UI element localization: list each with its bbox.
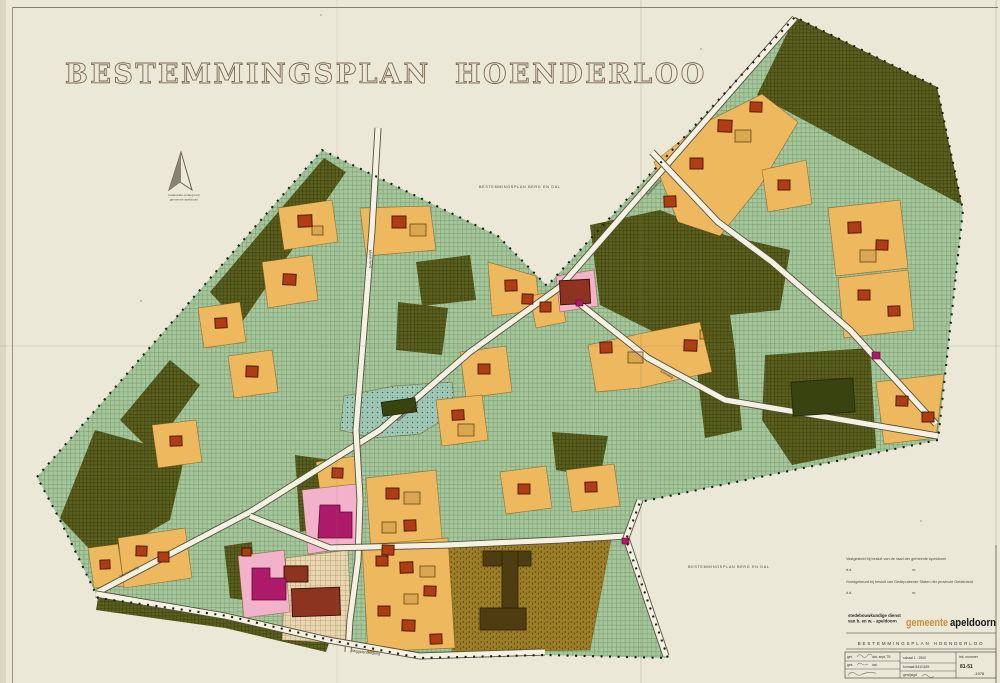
large-building: [284, 566, 308, 582]
stamp-teknr-label: tek. nummer: [959, 655, 979, 659]
stamp-get-label: get.: [847, 655, 853, 659]
map-title-right: HOENDERLOO: [455, 59, 707, 90]
building: [100, 560, 110, 569]
building: [382, 545, 394, 555]
building: [242, 548, 251, 556]
stamp-revised: gewijzigd: [903, 673, 917, 677]
building: [424, 586, 436, 596]
north-arrow-caption-2: gemeente apeldoorn: [170, 198, 199, 202]
building: [452, 410, 465, 421]
building: [778, 180, 790, 190]
approval-line2-nr: nr.: [912, 568, 916, 572]
building: [876, 240, 888, 250]
forest-area: [416, 255, 476, 306]
building: [540, 302, 551, 312]
stamp-municipality-bold: apeldoorn: [950, 617, 996, 629]
dark-building: [791, 378, 855, 416]
map-title-left: BESTEMMINGSPLAN: [65, 59, 431, 90]
stamp-year: -1976: [974, 671, 985, 676]
approval-line3: Goedgekeurd bij besluit van Gedeputeerde…: [846, 580, 973, 584]
forest-area: [396, 302, 448, 355]
building: [136, 546, 147, 556]
building: [430, 634, 442, 644]
building: [505, 280, 517, 291]
building: [386, 488, 399, 499]
zoning-map: KrimwegMiddenwegApeldoornsewegDelenseweg…: [0, 0, 1000, 683]
stamp-dept-line2: van b. en w. - apeldoorn: [848, 619, 897, 624]
signature-scribble: [922, 675, 934, 678]
residential-parcel: [436, 395, 488, 446]
adjacent-plan-label-top: BESTEMMINGSPLAN BERG EN DAL: [479, 185, 561, 189]
magenta-marker: [622, 538, 629, 544]
stamp-block: stedebouwkundige dienst van b. en w. - a…: [845, 613, 996, 678]
building-envelope: [458, 424, 474, 436]
approval-line4-dd: d.d.: [846, 591, 852, 595]
building: [392, 216, 406, 228]
residential-parcel: [828, 200, 908, 276]
building: [378, 606, 390, 616]
building: [400, 562, 413, 573]
approval-line4-nr: nr.: [912, 591, 916, 595]
paper-speck: [700, 48, 702, 50]
building: [404, 520, 416, 531]
building: [283, 274, 297, 286]
building-envelope: [312, 226, 323, 235]
signature-scribble: [848, 672, 876, 675]
building-envelope: [404, 492, 420, 504]
building: [246, 366, 258, 377]
building-envelope: [860, 250, 876, 262]
magenta-marker: [872, 352, 880, 359]
building: [896, 396, 908, 406]
north-arrow-caption-1: kadastrale ondergrond: [169, 193, 200, 197]
scanned-map-sheet: { "page": { "title1": "BESTEMMINGSPLAN",…: [0, 0, 1000, 683]
building-envelope: [382, 522, 396, 533]
building-envelope: [735, 130, 751, 142]
approval-line1: Vastgesteld bij besluit van de raad der …: [846, 557, 946, 561]
building: [922, 412, 934, 422]
adjacent-plan-label-bottom: BESTEMMINGSPLAN BERG EN DAL: [688, 565, 770, 569]
building: [158, 552, 169, 562]
building: [170, 436, 182, 446]
building: [518, 484, 530, 494]
building: [888, 306, 900, 316]
stamp-gez-date: dat.: [872, 663, 878, 667]
building: [402, 620, 415, 631]
building: [750, 102, 762, 112]
large-building: [559, 279, 590, 305]
stamp-municipality-light: gemeente: [906, 617, 948, 629]
approval-block: Vastgesteld bij besluit van de raad der …: [846, 557, 973, 595]
stamp-dept-line1: stedebouwkundige dienst: [848, 613, 901, 618]
building: [848, 222, 861, 233]
building: [690, 158, 703, 169]
stamp-get-date: dat. sept.'76: [872, 655, 890, 659]
building: [522, 294, 533, 304]
building-envelope: [700, 330, 712, 339]
paper-speck: [920, 520, 922, 522]
magenta-marker: [576, 300, 583, 306]
paper-speck: [140, 300, 142, 302]
building: [718, 120, 732, 132]
large-building: [292, 587, 341, 617]
road-label: Middenweg: [368, 250, 373, 269]
stamp-teknr: 81-51: [960, 664, 973, 670]
building-envelope: [410, 224, 426, 236]
signature-scribble: [857, 654, 872, 657]
stamp-scale: schaal 1 : 2500: [903, 656, 926, 660]
stamp-format: formaat 841/1189: [903, 665, 929, 669]
building: [600, 342, 612, 353]
paper-speck: [320, 14, 322, 16]
approval-line2-dd: d.d.: [846, 568, 852, 572]
building: [858, 290, 870, 300]
stamp-gez-label: gez.: [847, 663, 853, 667]
building: [478, 364, 490, 374]
building: [298, 215, 312, 227]
north-arrow: kadastrale ondergrond gemeente apeldoorn: [169, 152, 200, 202]
building-envelope: [420, 566, 435, 577]
building: [585, 482, 597, 492]
building: [664, 196, 676, 207]
institution-building: [480, 608, 526, 630]
building: [215, 318, 228, 329]
building: [376, 556, 388, 566]
sheet-edge-left: [0, 0, 6, 683]
building-envelope: [404, 594, 418, 604]
stamp-plan-title: BESTEMMINGSPLAN HOENDERLOO: [858, 641, 985, 646]
signature-scribble: [857, 663, 868, 665]
